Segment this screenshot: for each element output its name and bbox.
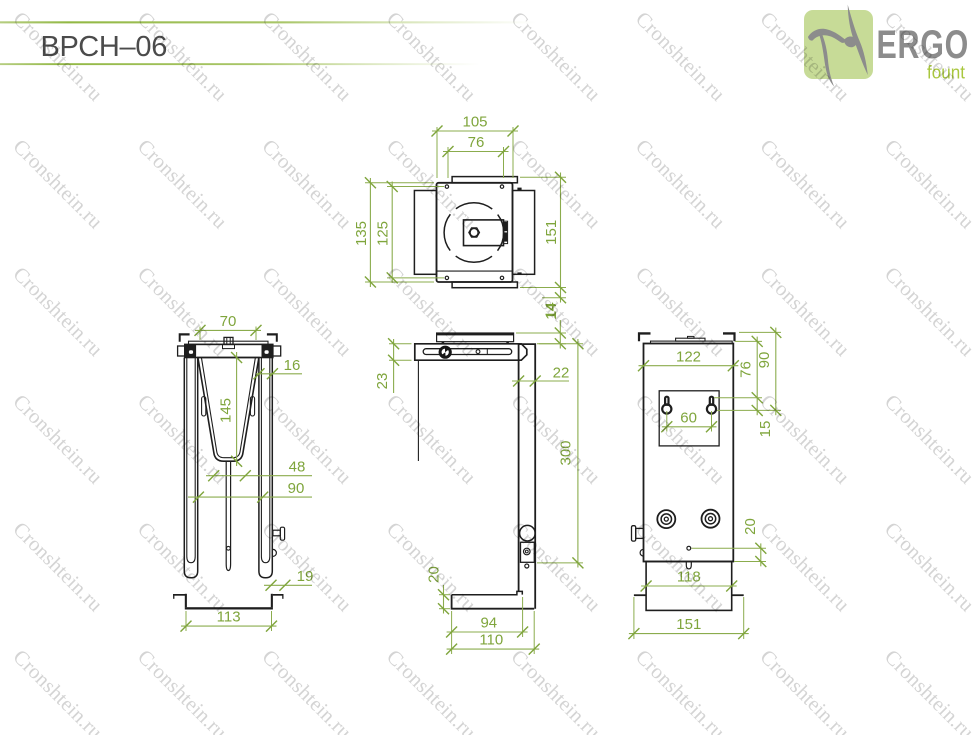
svg-text:110: 110 [479, 632, 503, 649]
svg-text:105: 105 [462, 114, 487, 131]
svg-text:23: 23 [374, 373, 391, 390]
svg-text:125: 125 [375, 221, 392, 246]
svg-text:145: 145 [218, 398, 235, 423]
svg-text:94: 94 [480, 615, 497, 632]
svg-text:76: 76 [738, 361, 755, 378]
svg-text:122: 122 [676, 348, 701, 365]
svg-text:135: 135 [353, 221, 370, 246]
svg-text:90: 90 [288, 480, 305, 497]
svg-text:48: 48 [289, 459, 306, 476]
svg-text:90: 90 [756, 352, 773, 369]
svg-text:22: 22 [553, 365, 570, 382]
svg-text:151: 151 [676, 616, 701, 633]
svg-text:60: 60 [680, 409, 697, 426]
svg-text:76: 76 [468, 134, 485, 151]
svg-text:70: 70 [220, 313, 237, 330]
svg-text:16: 16 [284, 357, 301, 374]
svg-text:151: 151 [543, 220, 560, 245]
svg-text:15: 15 [757, 421, 774, 438]
